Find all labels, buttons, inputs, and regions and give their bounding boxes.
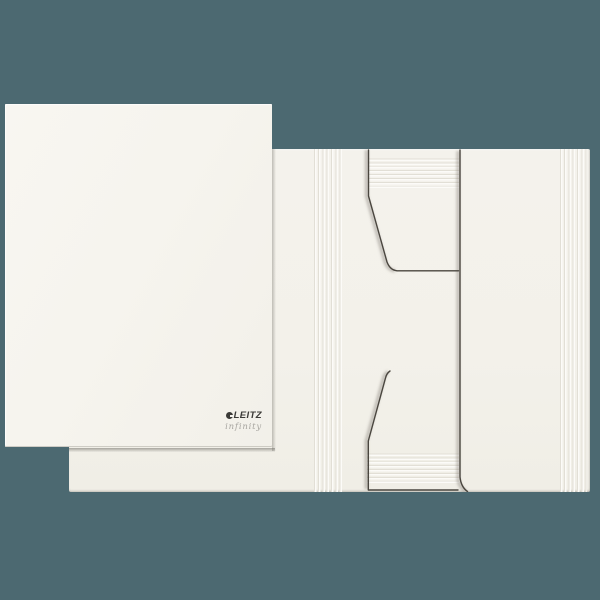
right-flap-edge <box>460 150 468 492</box>
brand-logo: LEITZ infinity <box>225 411 262 431</box>
leitz-circle-icon <box>226 412 233 419</box>
cover-right-shadow-seam <box>272 149 276 451</box>
cover-bottom-shadow-seam <box>69 448 275 452</box>
flap-edge-shadows <box>366 150 465 491</box>
series-name: infinity <box>225 423 262 432</box>
brand-name: LEITZ <box>234 411 262 421</box>
front-cover: LEITZ infinity <box>5 104 272 447</box>
product-photo-scene: LEITZ infinity <box>0 0 600 600</box>
